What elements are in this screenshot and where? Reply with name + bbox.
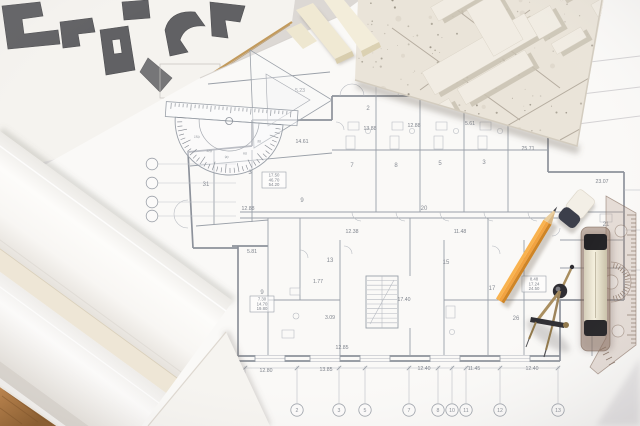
scene: 12357810111213 12.8013.8512.4011.4512.40… [0, 0, 640, 426]
photo-architectural-blueprints: 12357810111213 12.8013.8512.4011.4512.40… [0, 0, 640, 426]
vignette-overlay [0, 0, 640, 426]
